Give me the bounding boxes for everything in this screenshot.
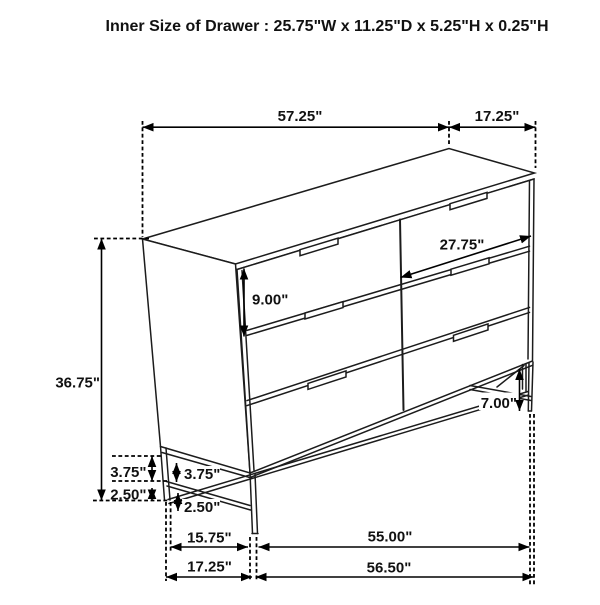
svg-text:56.50": 56.50"	[367, 560, 412, 577]
svg-text:36.75": 36.75"	[55, 375, 100, 392]
svg-text:57.25": 57.25"	[278, 108, 323, 125]
svg-text:15.75": 15.75"	[187, 530, 232, 547]
svg-text:3.75": 3.75"	[110, 464, 146, 481]
svg-text:7.00": 7.00"	[481, 395, 517, 412]
svg-text:3.75": 3.75"	[184, 466, 220, 483]
svg-text:27.75": 27.75"	[440, 237, 485, 254]
svg-text:17.25": 17.25"	[475, 108, 520, 125]
svg-text:Inner Size of Drawer : 25.75"W: Inner Size of Drawer : 25.75"W x 11.25"D…	[106, 18, 549, 35]
svg-text:2.50": 2.50"	[184, 499, 220, 516]
svg-text:2.50": 2.50"	[110, 487, 146, 504]
svg-text:9.00": 9.00"	[252, 292, 288, 309]
svg-text:17.25": 17.25"	[187, 559, 232, 576]
svg-text:55.00": 55.00"	[368, 529, 413, 546]
